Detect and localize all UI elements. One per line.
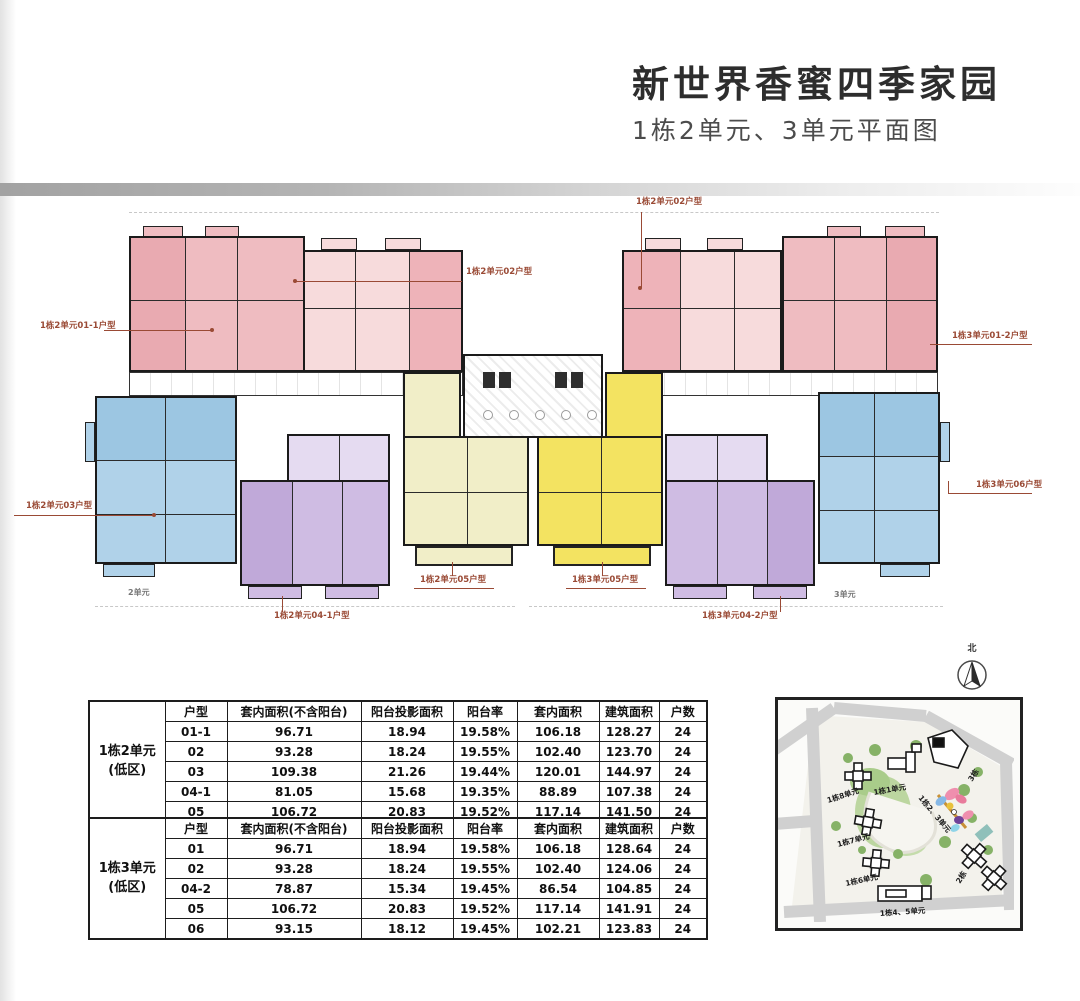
leader-line <box>780 596 781 612</box>
cell: 19.45% <box>453 919 517 940</box>
dimension-line <box>129 212 939 213</box>
table-row: 03109.3821.2619.44%120.01144.9724 <box>89 762 707 782</box>
cell: 96.71 <box>227 722 361 742</box>
unit-label-3-02: 1栋2单元02户型 <box>636 198 702 207</box>
cell: 106.18 <box>517 839 599 859</box>
unit-block-3-06 <box>818 392 940 564</box>
cell: 05 <box>165 899 227 919</box>
cell: 117.14 <box>517 899 599 919</box>
cell: 19.45% <box>453 879 517 899</box>
cell: 01 <box>165 839 227 859</box>
leader-line <box>414 588 494 589</box>
cell: 06 <box>165 919 227 940</box>
elevator-shaft <box>555 372 567 388</box>
unit-block-2-04-1-upper <box>287 434 390 482</box>
unit-block-2-05-upper <box>403 372 461 440</box>
cell: 04-1 <box>165 782 227 802</box>
table-row: 0293.2818.2419.55%102.40124.0624 <box>89 859 707 879</box>
page-subtitle: 1栋2单元、3单元平面图 <box>632 111 941 147</box>
cell: 15.68 <box>361 782 453 802</box>
cell: 20.83 <box>361 899 453 919</box>
table-row: 0693.1518.1219.45%102.21123.8324 <box>89 919 707 940</box>
wing-label-unit3: 3单元 <box>834 589 856 600</box>
cell: 24 <box>659 742 707 762</box>
cell: 104.85 <box>599 879 659 899</box>
leader-line <box>14 515 154 516</box>
leader-line <box>282 596 283 612</box>
page-title: 新世界香蜜四季家园 <box>632 54 1001 108</box>
cell: 102.21 <box>517 919 599 940</box>
unit-label-3-04-2: 1栋3单元04-2户型 <box>702 612 778 621</box>
unit-label-3-06: 1栋3单元06户型 <box>976 481 1042 490</box>
cell: 01-1 <box>165 722 227 742</box>
header-cell: 户数 <box>659 701 707 722</box>
balcony <box>880 564 930 577</box>
cell: 18.94 <box>361 839 453 859</box>
header-cell: 户型 <box>165 701 227 722</box>
cell: 24 <box>659 859 707 879</box>
north-arrow-icon <box>952 654 992 696</box>
cell: 19.55% <box>453 859 517 879</box>
cell: 102.40 <box>517 742 599 762</box>
balcony <box>248 586 302 599</box>
group-name: 1栋3单元 <box>99 861 156 876</box>
balcony <box>673 586 727 599</box>
cell: 18.12 <box>361 919 453 940</box>
cell: 93.15 <box>227 919 361 940</box>
cell: 19.55% <box>453 742 517 762</box>
cell: 93.28 <box>227 742 361 762</box>
cell: 123.83 <box>599 919 659 940</box>
cell: 124.06 <box>599 859 659 879</box>
table-group-cell: 1栋3单元(低区) <box>89 818 165 939</box>
unit-block-2-05 <box>403 436 529 546</box>
poster-page: 新世界香蜜四季家园 1栋2单元、3单元平面图 <box>0 0 1080 1001</box>
cell: 102.40 <box>517 859 599 879</box>
spec-table-unit2: 1栋2单元(低区) 户型 套内面积(不含阳台) 阳台投影面积 阳台率 套内面积 … <box>88 700 708 823</box>
unit-label-2-05: 1栋2单元05户型 <box>420 576 486 585</box>
unit-label-2-02: 1栋2单元02户型 <box>466 268 532 277</box>
balcony <box>645 238 681 250</box>
elevator-shaft <box>499 372 511 388</box>
cell: 78.87 <box>227 879 361 899</box>
unit-block-2-02 <box>303 250 463 372</box>
grid-bubble <box>587 410 597 420</box>
unit-label-3-01-2: 1栋3单元01-2户型 <box>952 332 1028 341</box>
grid-bubble <box>561 410 571 420</box>
wing-label-unit2: 2单元 <box>128 587 150 598</box>
unit-block-3-02 <box>622 250 782 372</box>
cell: 18.24 <box>361 859 453 879</box>
leader-line <box>948 493 1032 494</box>
leader-dot <box>638 286 642 290</box>
cell: 02 <box>165 742 227 762</box>
balcony <box>85 422 95 462</box>
cell: 88.89 <box>517 782 599 802</box>
cell: 109.38 <box>227 762 361 782</box>
unit-label-2-04-1: 1栋2单元04-1户型 <box>274 612 350 621</box>
header-cell: 阳台投影面积 <box>361 818 453 839</box>
cell: 24 <box>659 762 707 782</box>
table-group-cell: 1栋2单元(低区) <box>89 701 165 822</box>
header-cell: 套内面积(不含阳台) <box>227 818 361 839</box>
cell: 128.64 <box>599 839 659 859</box>
cell: 141.91 <box>599 899 659 919</box>
header-cell: 户数 <box>659 818 707 839</box>
header-cell: 阳台率 <box>453 818 517 839</box>
dimension-line <box>95 606 515 607</box>
unit-block-3-05 <box>537 436 663 546</box>
unit-block-2-03 <box>95 396 237 564</box>
balcony <box>707 238 743 250</box>
leader-dot <box>210 328 214 332</box>
cell: 18.24 <box>361 742 453 762</box>
cell: 144.97 <box>599 762 659 782</box>
cell: 86.54 <box>517 879 599 899</box>
unit-block-3-05-upper <box>605 372 663 440</box>
leader-line <box>602 562 603 576</box>
leader-line <box>948 481 949 493</box>
unit-label-2-03: 1栋2单元03户型 <box>26 502 92 511</box>
unit-block-3-04-2-upper <box>665 434 768 482</box>
table-row: 04-181.0515.6819.35%88.89107.3824 <box>89 782 707 802</box>
table-header-row: 1栋2单元(低区) 户型 套内面积(不含阳台) 阳台投影面积 阳台率 套内面积 … <box>89 701 707 722</box>
balcony <box>385 238 421 250</box>
leader-line <box>104 330 212 331</box>
cell: 03 <box>165 762 227 782</box>
cell: 96.71 <box>227 839 361 859</box>
balcony <box>321 238 357 250</box>
unit-block-3-01-2 <box>782 236 938 372</box>
group-zone: (低区) <box>108 880 146 895</box>
compass: 北 <box>950 641 994 695</box>
compass-north-label: 北 <box>950 641 994 654</box>
cell: 24 <box>659 919 707 940</box>
cell: 19.58% <box>453 722 517 742</box>
cell: 15.34 <box>361 879 453 899</box>
leader-line <box>641 212 642 288</box>
unit-block-3-04-2 <box>665 480 815 586</box>
elevator-shaft <box>571 372 583 388</box>
balcony <box>415 546 513 566</box>
header-cell: 建筑面积 <box>599 701 659 722</box>
table-row: 05106.7220.8319.52%117.14141.9124 <box>89 899 707 919</box>
unit-block-2-04-1 <box>240 480 390 586</box>
cell: 02 <box>165 859 227 879</box>
cell: 21.26 <box>361 762 453 782</box>
cell: 120.01 <box>517 762 599 782</box>
table-row: 0196.7118.9419.58%106.18128.6424 <box>89 839 707 859</box>
balcony <box>940 422 950 462</box>
cell: 107.38 <box>599 782 659 802</box>
balcony <box>325 586 379 599</box>
leader-dot <box>152 513 156 517</box>
site-map-drawing: 1栋8单元 1栋1单元 1栋7单元 1栋6单元 1栋4、5单元 2栋 3栋 1栋… <box>778 700 1014 922</box>
site-map: 1栋8单元 1栋1单元 1栋7单元 1栋6单元 1栋4、5单元 2栋 3栋 1栋… <box>775 697 1023 931</box>
unit-label-3-05: 1栋3单元05户型 <box>572 576 638 585</box>
floor-plan <box>85 222 957 618</box>
cell: 128.27 <box>599 722 659 742</box>
cell: 24 <box>659 899 707 919</box>
leader-line <box>930 344 1032 345</box>
group-name: 1栋2单元 <box>99 744 156 759</box>
header-cell: 套内面积 <box>517 818 599 839</box>
cell: 24 <box>659 839 707 859</box>
header-cell: 建筑面积 <box>599 818 659 839</box>
cell: 24 <box>659 879 707 899</box>
cell: 81.05 <box>227 782 361 802</box>
leader-line <box>452 562 453 576</box>
cell: 18.94 <box>361 722 453 742</box>
grid-bubble <box>535 410 545 420</box>
cell: 24 <box>659 782 707 802</box>
table-row: 04-278.8715.3419.45%86.54104.8524 <box>89 879 707 899</box>
unit-block-2-01-1 <box>129 236 305 372</box>
cell: 19.35% <box>453 782 517 802</box>
elevator-shaft <box>483 372 495 388</box>
spec-table-unit3: 1栋3单元(低区) 户型 套内面积(不含阳台) 阳台投影面积 阳台率 套内面积 … <box>88 817 708 940</box>
header-cell: 阳台率 <box>453 701 517 722</box>
header-cell: 阳台投影面积 <box>361 701 453 722</box>
cell: 106.18 <box>517 722 599 742</box>
cell: 04-2 <box>165 879 227 899</box>
balcony <box>103 564 155 577</box>
core-stair-elevator <box>463 354 603 438</box>
header-cell: 户型 <box>165 818 227 839</box>
table-row: 01-196.7118.9419.58%106.18128.2724 <box>89 722 707 742</box>
cell: 19.52% <box>453 899 517 919</box>
left-edge-gradient <box>0 0 16 1001</box>
cell: 24 <box>659 722 707 742</box>
header-divider-bar <box>0 183 1080 196</box>
leader-line <box>566 588 646 589</box>
table-row: 0293.2818.2419.55%102.40123.7024 <box>89 742 707 762</box>
header-cell: 套内面积 <box>517 701 599 722</box>
group-zone: (低区) <box>108 763 146 778</box>
dimension-line <box>529 606 943 607</box>
table-header-row: 1栋3单元(低区) 户型 套内面积(不含阳台) 阳台投影面积 阳台率 套内面积 … <box>89 818 707 839</box>
cell: 123.70 <box>599 742 659 762</box>
cell: 93.28 <box>227 859 361 879</box>
leader-dot <box>293 279 297 283</box>
cell: 19.58% <box>453 839 517 859</box>
header-cell: 套内面积(不含阳台) <box>227 701 361 722</box>
leader-line <box>296 281 462 282</box>
cell: 19.44% <box>453 762 517 782</box>
grid-bubble <box>509 410 519 420</box>
grid-bubble <box>483 410 493 420</box>
cell: 106.72 <box>227 899 361 919</box>
